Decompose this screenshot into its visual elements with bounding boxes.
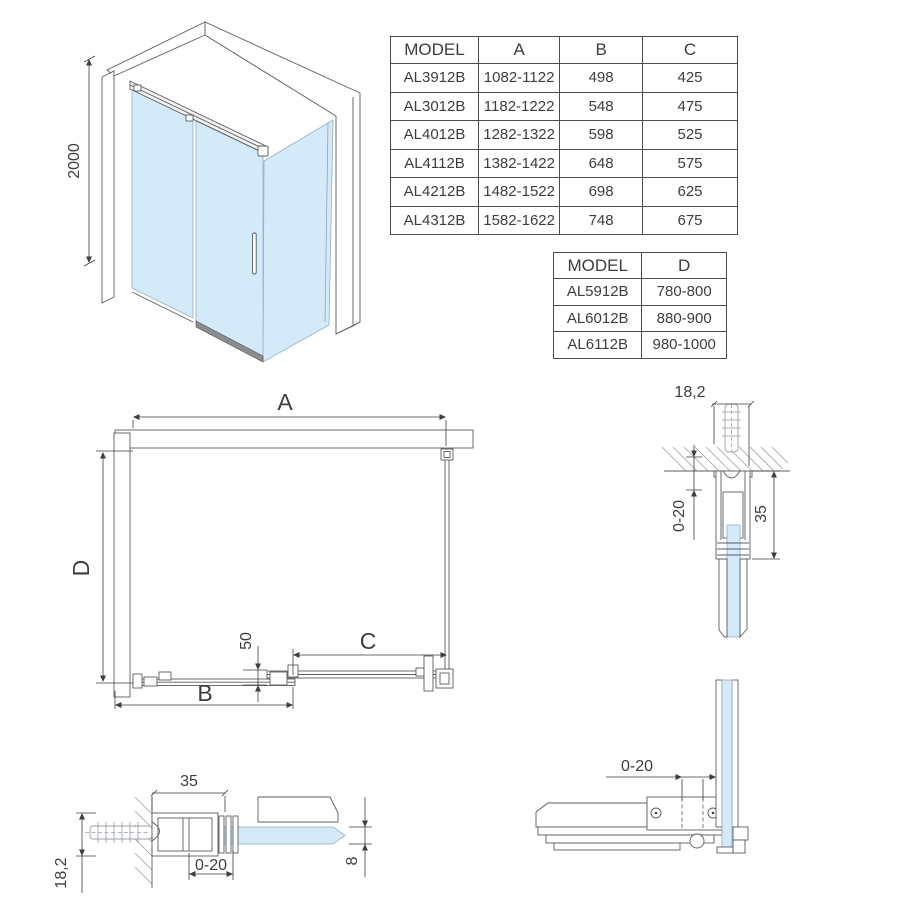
cell-model: AL5912B <box>554 279 642 306</box>
cell-b: 748 <box>560 206 643 235</box>
cell-c: 675 <box>643 206 738 235</box>
detail2-glass-label: 8 <box>344 856 361 865</box>
cell-model: AL3012B <box>391 92 479 121</box>
cell-model: AL4112B <box>391 149 479 178</box>
glass-clamp-strip <box>716 680 722 827</box>
rail-arm <box>536 803 647 827</box>
cell-model: AL6012B <box>554 305 642 332</box>
plan-dim-d-label: D <box>68 560 94 577</box>
detail2-adjust-label: 0-20 <box>195 857 227 874</box>
plan-view: A D B C 50 <box>68 389 473 709</box>
cell-c: 625 <box>643 178 738 207</box>
door-handle <box>253 233 257 274</box>
gasket-rib <box>226 816 231 853</box>
plan-bracket <box>270 672 287 685</box>
cell-d: 780-800 <box>642 279 727 306</box>
table-row: AL3012B 1182-1222 548 475 <box>391 92 738 121</box>
plan-bracket <box>144 677 157 686</box>
cell-a: 1382-1422 <box>479 149 560 178</box>
table-row: AL5912B 780-800 <box>554 279 727 306</box>
cell-d: 980-1000 <box>642 332 727 359</box>
plan-dim-b-label: B <box>197 680 212 706</box>
plan-top-bracket <box>441 449 453 460</box>
cell-model: AL4012B <box>391 121 479 150</box>
side-glass-panel <box>263 120 333 362</box>
cell-a: 1582-1622 <box>479 206 560 235</box>
detail3-adjust-label: 0-20 <box>621 758 653 775</box>
table-row: AL4112B 1382-1422 648 575 <box>391 149 738 178</box>
rail-clip <box>134 85 141 91</box>
cell-b: 548 <box>560 92 643 121</box>
detail-wall-profile-vertical: 18,2 0-20 35 <box>662 384 790 637</box>
detail1-width-label: 18,2 <box>674 384 705 401</box>
rail-band <box>546 835 714 843</box>
plan-side-panel <box>445 452 449 688</box>
cell-b: 648 <box>560 149 643 178</box>
gasket-rib <box>233 816 238 853</box>
cell-c: 425 <box>643 64 738 93</box>
table-row: AL6112B 980-1000 <box>554 332 727 359</box>
plan-dim-overlap-label: 50 <box>238 632 255 650</box>
profile-sleeve <box>719 559 727 637</box>
cell-c: 575 <box>643 149 738 178</box>
plan-corner-roller <box>436 669 453 688</box>
cell-model: AL4312B <box>391 206 479 235</box>
left-wall-top <box>107 22 205 76</box>
cell-a: 1482-1522 <box>479 178 560 207</box>
corner-block <box>733 840 745 853</box>
col-header-b: B <box>560 37 643 64</box>
plan-dim-a-label: A <box>277 389 293 415</box>
cell-model: AL6112B <box>554 332 642 359</box>
glass-clamp-strip <box>732 680 738 827</box>
corner-block <box>733 827 748 840</box>
cell-a: 1282-1322 <box>479 121 560 150</box>
detail1-adjust-label: 0-20 <box>671 500 688 532</box>
table-row: AL4012B 1282-1322 598 525 <box>391 121 738 150</box>
plan-wall-bracket <box>133 674 142 688</box>
col-header-model: MODEL <box>391 37 479 64</box>
detail2-width-label: 18,2 <box>53 857 70 888</box>
col-header-a: A <box>479 37 560 64</box>
door-profile-block <box>258 797 338 822</box>
glass-section <box>727 525 740 637</box>
left-wall <box>102 71 114 303</box>
cell-model: AL4212B <box>391 178 479 207</box>
plan-top-wall <box>115 430 473 448</box>
profile-sleeve <box>740 559 747 637</box>
rail-end-cap <box>258 146 268 156</box>
cell-b: 498 <box>560 64 643 93</box>
spec-table-depth: MODEL D AL5912B 780-800 AL6012B 880-900 … <box>553 252 727 359</box>
cell-model: AL3912B <box>391 64 479 93</box>
plan-bracket <box>159 672 171 680</box>
cell-c: 475 <box>643 92 738 121</box>
detail1-height-label: 35 <box>753 505 770 523</box>
spec-table-main: MODEL A B C AL3912B 1082-1122 498 425 AL… <box>390 36 738 235</box>
plan-dim-c-label: C <box>360 628 377 654</box>
detail-wall-profile-horizontal: 35 0-20 8 18,2 <box>53 773 372 893</box>
iso-height-dim-label: 2000 <box>66 143 83 179</box>
table-row: AL4212B 1482-1522 698 625 <box>391 178 738 207</box>
spec-sheet: 2000 A <box>0 0 900 900</box>
table-header-row: MODEL D <box>554 253 727 279</box>
rail-band <box>554 843 680 850</box>
detail-corner-connection: 0-20 <box>536 680 748 853</box>
plan-corner-post <box>424 656 433 691</box>
table-row: AL6012B 880-900 <box>554 305 727 332</box>
gasket-rib <box>219 816 224 853</box>
cell-d: 880-900 <box>642 305 727 332</box>
corner-block <box>717 847 733 853</box>
table-header-row: MODEL A B C <box>391 37 738 64</box>
glass-section <box>722 680 732 848</box>
cell-a: 1182-1222 <box>479 92 560 121</box>
isometric-view: 2000 <box>66 22 360 362</box>
rail-clip <box>186 115 193 121</box>
plan-left-wall <box>114 433 130 697</box>
table-row: AL4312B 1582-1622 748 675 <box>391 206 738 235</box>
col-header-d: D <box>642 253 727 279</box>
col-header-model: MODEL <box>554 253 642 279</box>
table-row: AL3912B 1082-1122 498 425 <box>391 64 738 93</box>
fixed-glass-panel <box>132 84 193 318</box>
col-header-c: C <box>643 37 738 64</box>
cell-c: 525 <box>643 121 738 150</box>
cell-b: 698 <box>560 178 643 207</box>
cell-a: 1082-1122 <box>479 64 560 93</box>
cell-b: 598 <box>560 121 643 150</box>
wall-profile-body <box>152 813 218 856</box>
roller <box>690 834 704 848</box>
detail2-depth-label: 35 <box>180 773 198 790</box>
